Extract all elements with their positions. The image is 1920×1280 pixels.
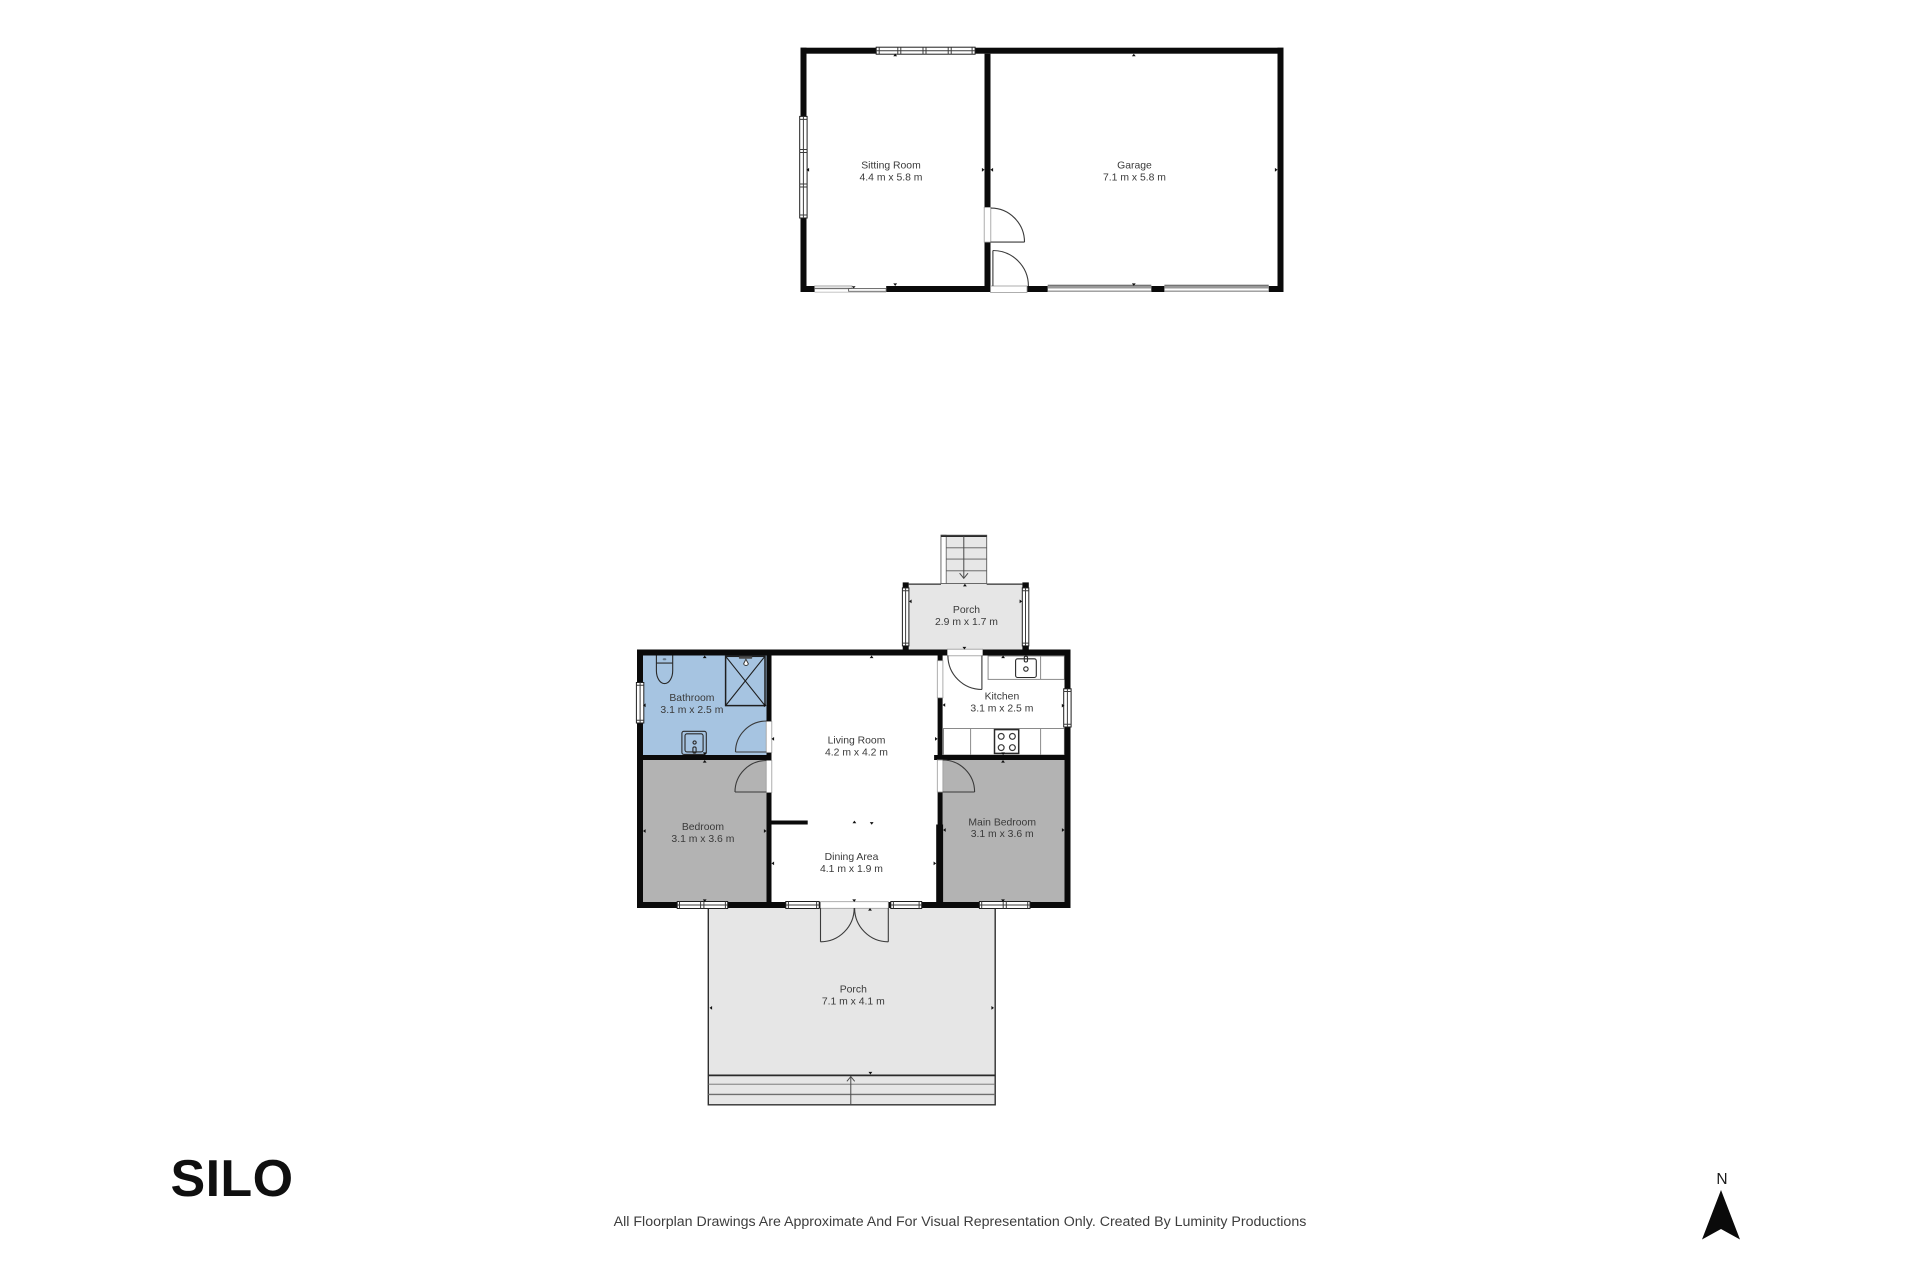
svg-text:2.9 m x 1.7 m: 2.9 m x 1.7 m bbox=[935, 617, 998, 628]
svg-text:4.1 m x 1.9 m: 4.1 m x 1.9 m bbox=[820, 864, 883, 875]
svg-text:SILO: SILO bbox=[171, 1150, 294, 1208]
svg-text:Main Bedroom: Main Bedroom bbox=[968, 817, 1036, 828]
svg-text:Sitting Room: Sitting Room bbox=[861, 160, 920, 171]
svg-text:Porch: Porch bbox=[840, 985, 867, 996]
svg-text:4.2 m x 4.2 m: 4.2 m x 4.2 m bbox=[825, 747, 888, 758]
svg-text:3.1 m x 3.6 m: 3.1 m x 3.6 m bbox=[671, 834, 734, 845]
svg-text:All Floorplan Drawings Are App: All Floorplan Drawings Are Approximate A… bbox=[614, 1214, 1307, 1230]
svg-text:3.1 m x 2.5 m: 3.1 m x 2.5 m bbox=[970, 704, 1033, 715]
svg-text:7.1 m x 4.1 m: 7.1 m x 4.1 m bbox=[822, 997, 885, 1008]
svg-text:4.4 m x 5.8 m: 4.4 m x 5.8 m bbox=[860, 172, 923, 183]
svg-text:3.1 m x 3.6 m: 3.1 m x 3.6 m bbox=[971, 829, 1034, 840]
svg-text:3.1 m x 2.5 m: 3.1 m x 2.5 m bbox=[660, 705, 723, 716]
svg-text:Bedroom: Bedroom bbox=[682, 822, 724, 833]
svg-text:Living Room: Living Room bbox=[828, 736, 886, 747]
svg-text:Kitchen: Kitchen bbox=[985, 692, 1020, 703]
svg-text:Porch: Porch bbox=[953, 605, 980, 616]
svg-text:Garage: Garage bbox=[1117, 160, 1152, 171]
svg-text:Dining Area: Dining Area bbox=[825, 852, 879, 863]
svg-text:7.1 m x 5.8 m: 7.1 m x 5.8 m bbox=[1103, 172, 1166, 183]
svg-text:N: N bbox=[1716, 1171, 1727, 1188]
svg-text:Bathroom: Bathroom bbox=[669, 693, 714, 704]
